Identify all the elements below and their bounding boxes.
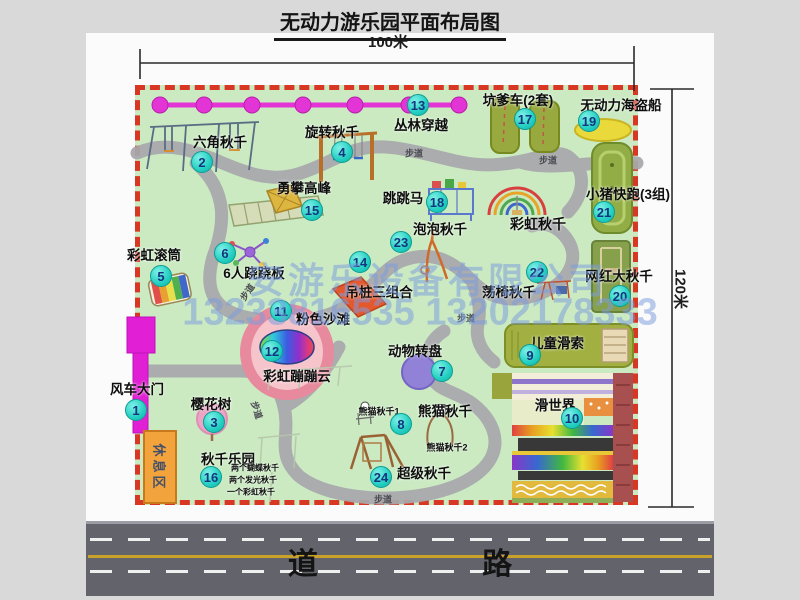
right-dimension-label: 120米 bbox=[671, 269, 692, 309]
road: 道 路 bbox=[86, 521, 714, 596]
road-label: 道 路 bbox=[86, 539, 714, 583]
rest-area-label: 休息区 bbox=[151, 443, 170, 491]
rest-area-box: 休息区 bbox=[143, 430, 177, 504]
page-title: 无动力游乐园平面布局图 bbox=[274, 6, 506, 41]
park-layout-page: 无动力游乐园平面布局图 bbox=[0, 0, 800, 600]
park-map-area bbox=[135, 85, 638, 505]
